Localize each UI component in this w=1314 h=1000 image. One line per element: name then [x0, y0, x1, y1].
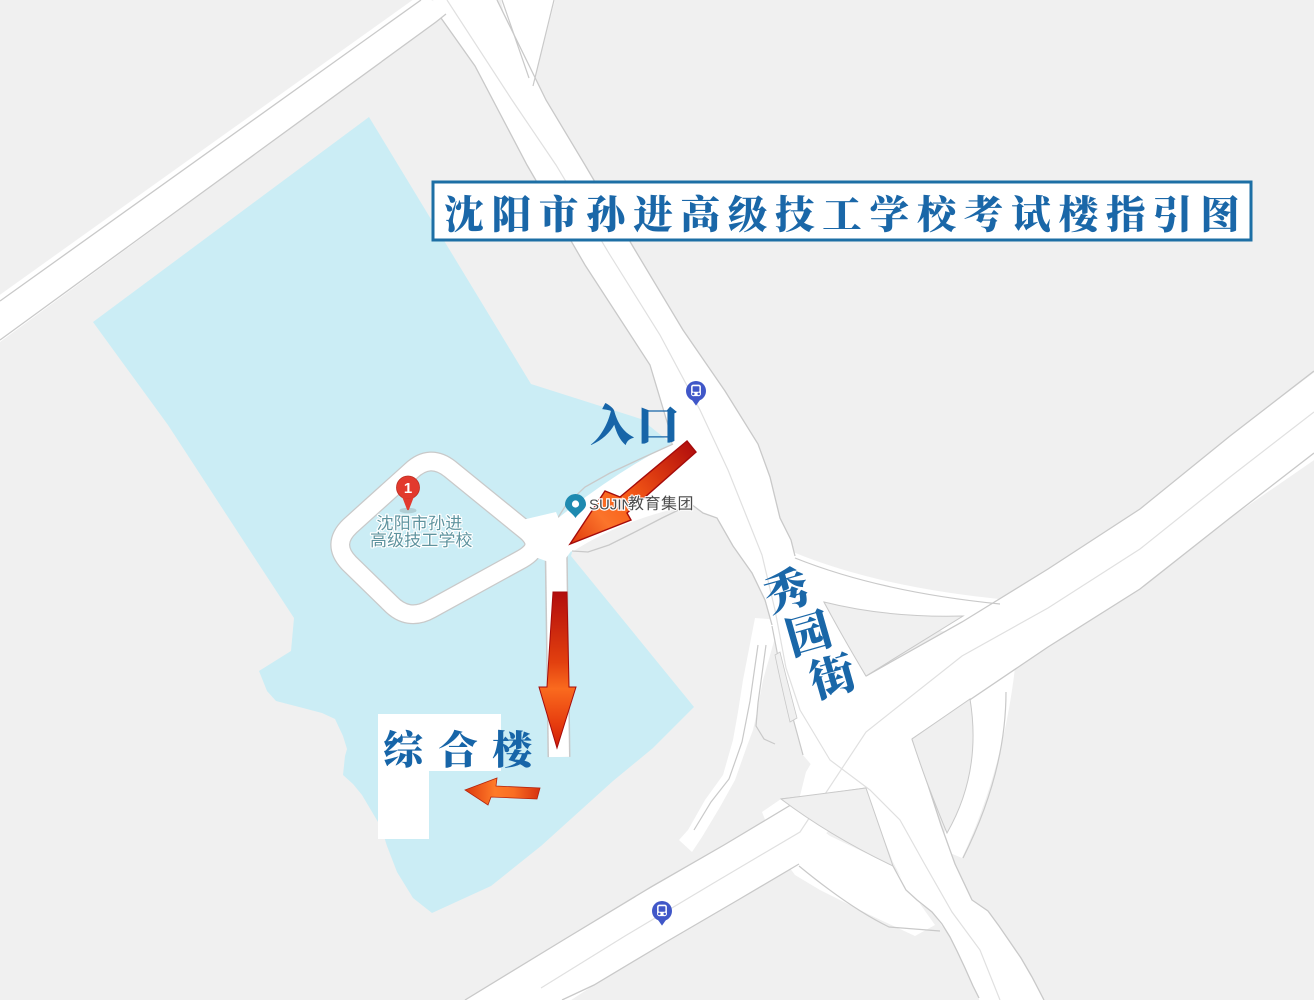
svg-text:1: 1	[404, 480, 412, 497]
svg-text:SUJIN: SUJIN	[589, 497, 632, 514]
